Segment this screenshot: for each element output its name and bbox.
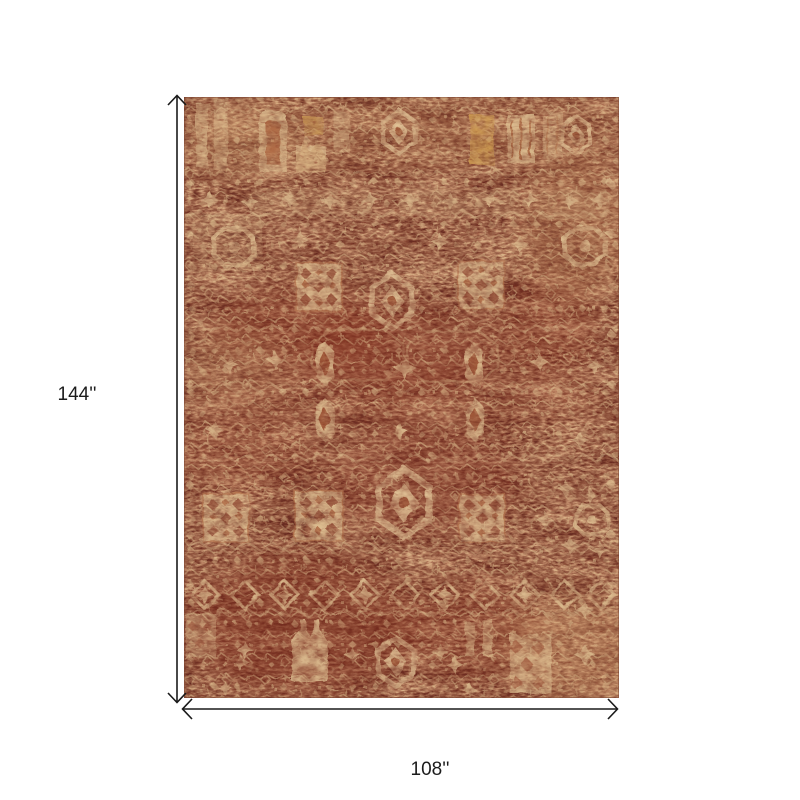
svg-text:108'': 108'' bbox=[411, 759, 450, 780]
svg-text:144'': 144'' bbox=[58, 384, 97, 405]
